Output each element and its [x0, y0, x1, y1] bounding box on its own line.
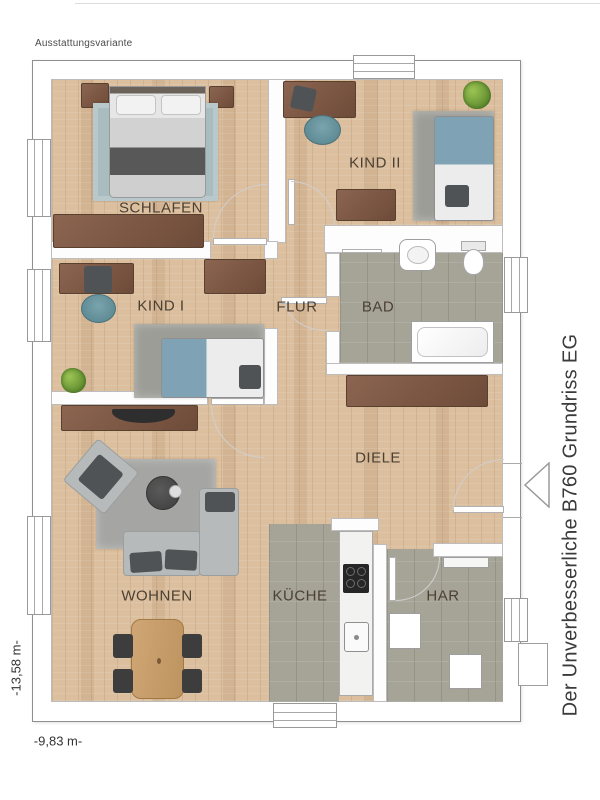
- towel-rail: [342, 249, 382, 253]
- single-bed: [434, 116, 494, 221]
- dining-table: [131, 619, 184, 699]
- room-label-flur: FLUR: [276, 299, 317, 316]
- room-label-wohnen: WOHNEN: [121, 588, 192, 605]
- kind2-dresser: [336, 189, 396, 221]
- schlafen-dresser: [53, 214, 204, 248]
- entrance-arrow-icon: [524, 462, 550, 508]
- room-label-schlafen: SCHLAFEN: [119, 200, 203, 217]
- burner: [357, 579, 366, 588]
- entrance-jamb-bottom: [503, 517, 522, 518]
- room-label-bad: BAD: [362, 299, 394, 316]
- laptop: [290, 85, 317, 112]
- kind1-wardrobe: [204, 259, 266, 294]
- desk-chair: [304, 115, 341, 145]
- floor-plan-page: Ausstattungsvariante: [0, 0, 600, 800]
- window-wohnen-left: [27, 516, 51, 615]
- wall-bad-left-upper: [326, 253, 340, 297]
- window-kueche-bottom: [273, 703, 337, 728]
- cushion: [77, 454, 123, 501]
- wall-har-top: [433, 543, 503, 557]
- cushion: [445, 185, 469, 207]
- bathtub: [411, 321, 494, 363]
- appliance: [449, 654, 482, 689]
- double-bed: [109, 86, 206, 198]
- wall-kueche-har: [373, 544, 387, 702]
- room-label-diele: DIELE: [355, 450, 401, 467]
- top-edge-line: [75, 3, 600, 4]
- window-har-right: [504, 598, 528, 642]
- diele-sideboard: [346, 375, 488, 407]
- sofa-cushion: [164, 549, 197, 571]
- window-kind1-left: [27, 269, 51, 342]
- dining-chair: [182, 669, 202, 693]
- sofa-chaise: [199, 488, 239, 576]
- room-label-har: HAR: [426, 588, 459, 605]
- plant: [61, 368, 86, 393]
- har-shelf: [443, 557, 489, 568]
- drain: [354, 635, 359, 640]
- table-knot: [157, 658, 161, 664]
- schlafen-door-leaf: [213, 238, 267, 245]
- room-label-kueche: KÜCHE: [272, 588, 327, 605]
- wall-kind1-flur: [264, 328, 278, 405]
- har-door-leaf: [389, 557, 396, 601]
- pillow: [116, 95, 156, 115]
- laptop: [84, 266, 112, 293]
- cushion: [239, 365, 261, 389]
- side-tray: [169, 485, 182, 498]
- window-kind2-top: [353, 55, 415, 79]
- floor-plan: [32, 60, 521, 722]
- sofa-cushion: [129, 551, 162, 573]
- kitchen-sink: [344, 622, 369, 652]
- toilet: [463, 249, 484, 275]
- window-bad-right: [504, 257, 528, 313]
- room-label-kind1: KIND I: [137, 298, 184, 315]
- sofa-seat: [123, 531, 201, 576]
- washing-machine: [389, 613, 421, 649]
- plan-title: Der Unverbesserliche B760 Grundriss EG: [560, 334, 583, 717]
- basin-bowl: [407, 246, 429, 264]
- dining-chair: [113, 634, 133, 658]
- plant: [463, 81, 491, 109]
- dining-chair: [113, 669, 133, 693]
- burner: [346, 579, 355, 588]
- chimney: [518, 643, 548, 686]
- washbasin: [399, 239, 436, 271]
- single-bed: [161, 338, 264, 398]
- bathtub-basin: [417, 327, 488, 357]
- tv-lowboard: [61, 405, 198, 431]
- dining-chair: [182, 634, 202, 658]
- kind1-door-leaf: [211, 398, 264, 405]
- kind2-desk: [283, 81, 356, 118]
- desk-chair: [81, 294, 116, 323]
- kind1-desk: [59, 263, 134, 294]
- variant-label: Ausstattungsvariante: [35, 38, 132, 49]
- kitchen-counter: [339, 531, 373, 696]
- burner: [346, 567, 355, 576]
- wall-diele-kueche: [331, 518, 379, 531]
- sofa-headrest: [205, 492, 235, 512]
- burner: [357, 567, 366, 576]
- window-schlafen-left-1: [27, 139, 51, 217]
- cooktop: [343, 564, 369, 593]
- pillow: [161, 95, 201, 115]
- kueche-tile-floor: [269, 524, 339, 702]
- dimension-width: -9,83 m-: [34, 734, 82, 749]
- tv: [112, 409, 175, 423]
- entrance-jamb-top: [503, 463, 522, 464]
- dimension-height: -13,58 m-: [9, 640, 24, 696]
- wall-bad-bottom: [326, 363, 503, 375]
- room-label-kind2: KIND II: [349, 155, 401, 172]
